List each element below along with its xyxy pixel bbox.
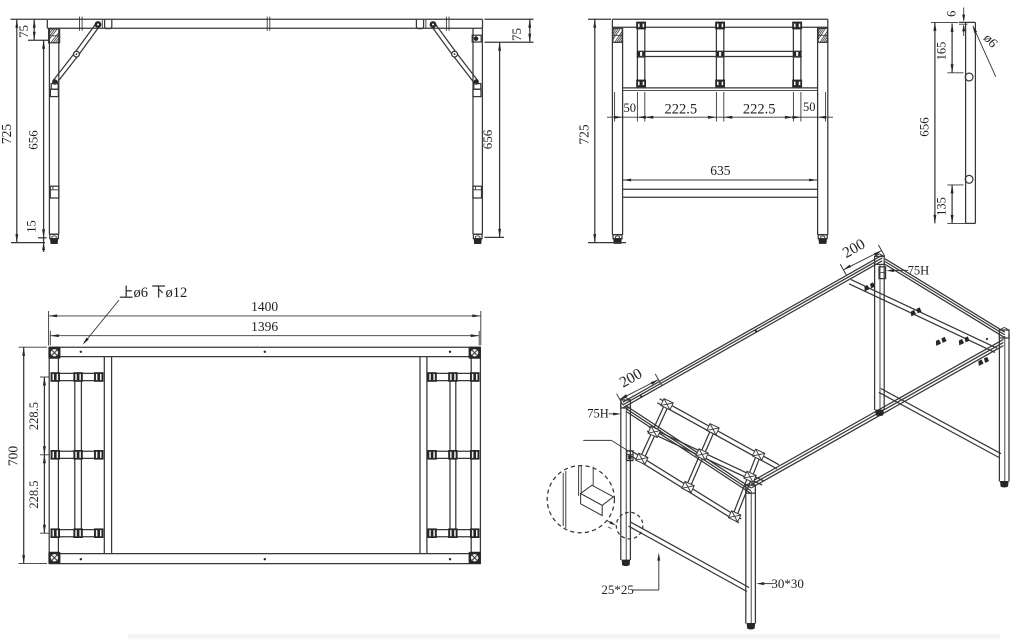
svg-text:15: 15 <box>25 220 39 233</box>
svg-text:656: 656 <box>917 117 932 137</box>
svg-text:ø12: ø12 <box>166 285 188 301</box>
svg-text:50: 50 <box>624 101 637 115</box>
svg-text:222.5: 222.5 <box>664 102 697 118</box>
svg-text:656: 656 <box>480 129 495 149</box>
svg-text:200: 200 <box>617 365 646 391</box>
svg-text:75: 75 <box>509 28 524 41</box>
svg-text:50: 50 <box>803 100 816 114</box>
svg-text:200: 200 <box>840 235 869 261</box>
svg-text:228.5: 228.5 <box>27 480 41 508</box>
svg-text:1396: 1396 <box>251 319 278 334</box>
svg-text:135: 135 <box>934 197 948 216</box>
svg-text:30*30: 30*30 <box>771 576 804 591</box>
svg-text:75H: 75H <box>908 264 930 278</box>
svg-text:656: 656 <box>25 130 40 150</box>
svg-text:ø6: ø6 <box>981 30 1001 50</box>
svg-text:165: 165 <box>934 42 948 61</box>
svg-text:75H: 75H <box>587 406 609 420</box>
svg-text:700: 700 <box>6 446 21 467</box>
svg-text:725: 725 <box>0 124 14 145</box>
svg-text:1400: 1400 <box>251 299 278 314</box>
svg-text:635: 635 <box>710 163 731 178</box>
svg-text:725: 725 <box>577 124 592 145</box>
svg-text:222.5: 222.5 <box>743 102 776 118</box>
svg-text:ø6: ø6 <box>134 285 149 301</box>
svg-text:75: 75 <box>16 25 31 38</box>
svg-text:228.5: 228.5 <box>27 402 41 430</box>
svg-text:25*25: 25*25 <box>601 582 634 597</box>
svg-text:6: 6 <box>944 11 958 17</box>
